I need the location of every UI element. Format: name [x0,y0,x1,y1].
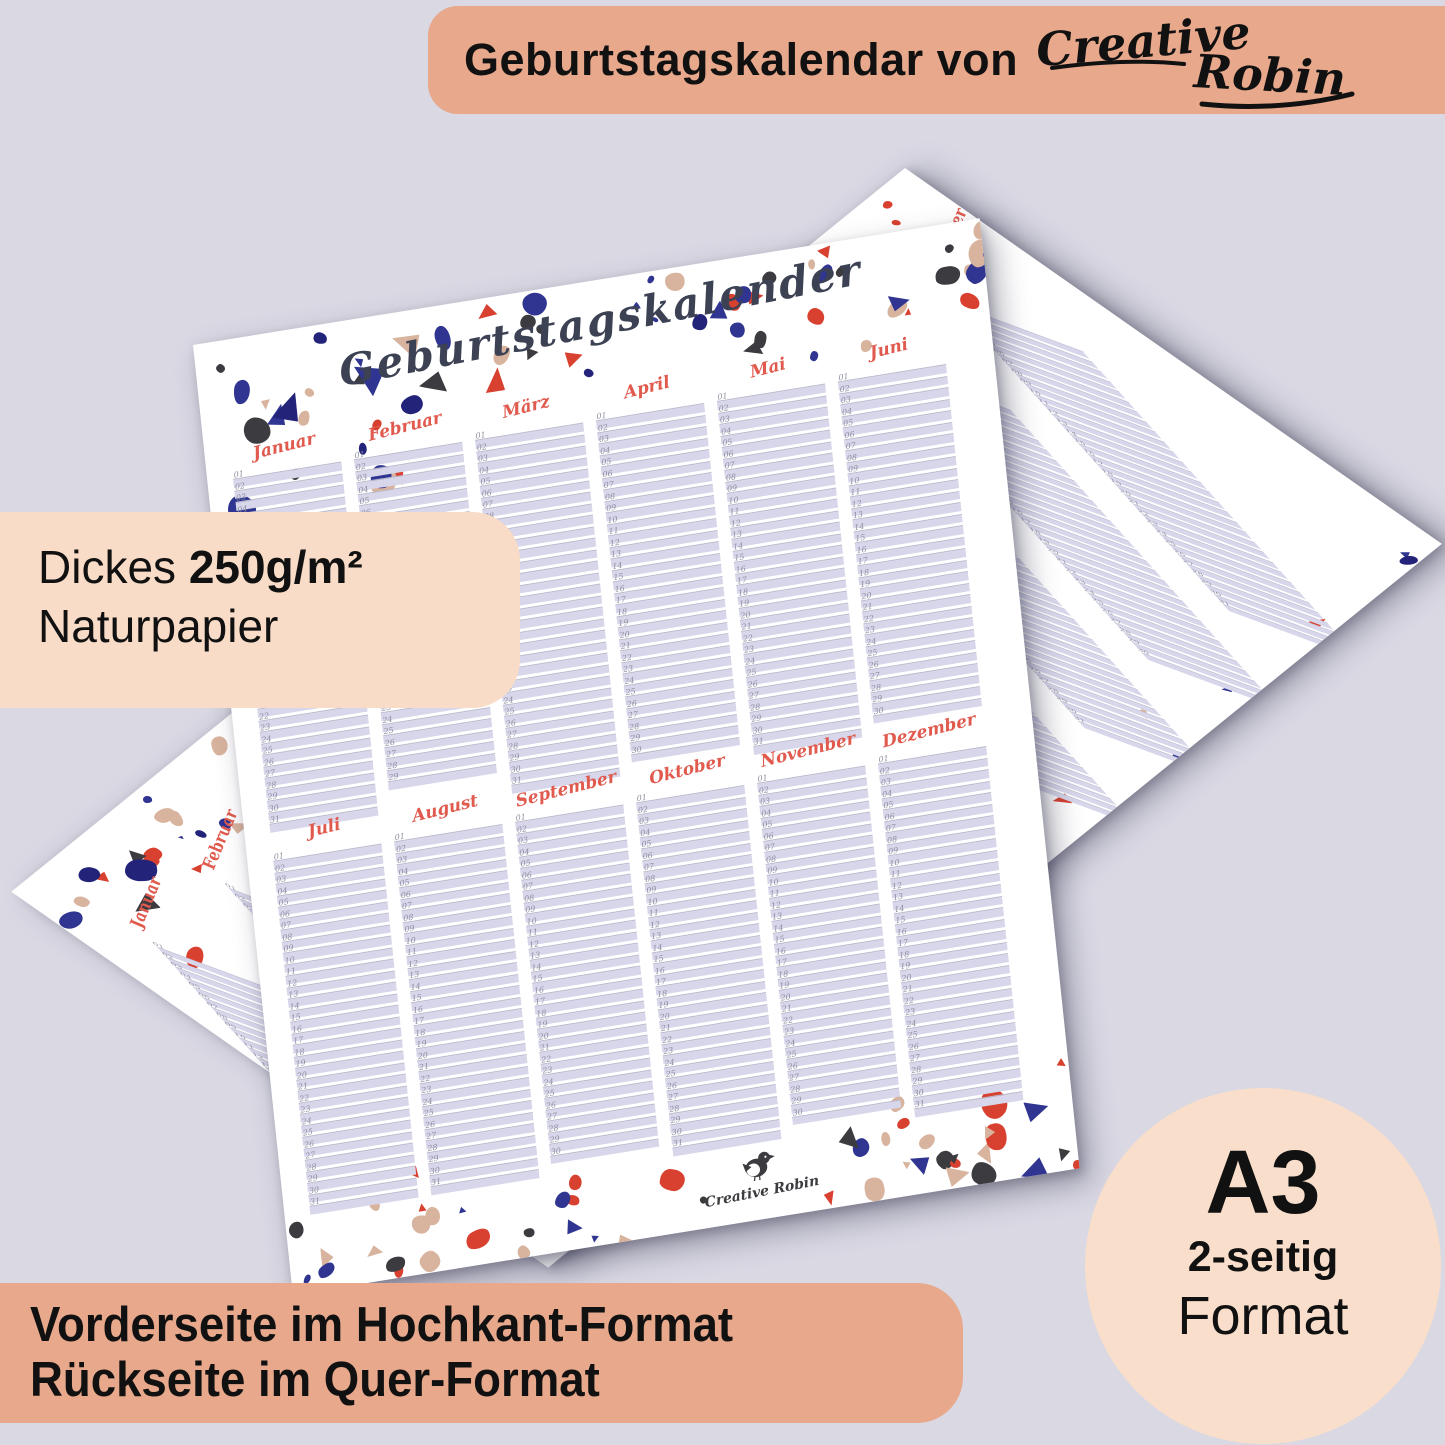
paper-spec-badge: Dickes 250g/m² Naturpapier [0,512,520,708]
day-number: 15 [613,573,624,583]
day-number: 30 [792,1108,803,1118]
day-number: 18 [415,1028,426,1038]
day-number: 03 [276,875,287,885]
day-number: 05 [601,458,612,468]
day-number: 04 [882,789,893,799]
day-number: 17 [736,576,747,586]
day-number: 29 [388,773,399,783]
day-number: 03 [760,797,771,807]
day-number: 02 [718,404,729,414]
day-number: 06 [400,890,411,900]
day-number: 08 [766,855,777,865]
terrazzo-spot [515,1243,532,1261]
day-number: 30 [268,804,279,814]
day-number: 04 [761,809,772,819]
day-number: 04 [358,485,369,495]
day-number: 03 [720,415,731,425]
terrazzo-spot [258,396,271,410]
day-number: 05 [883,801,894,811]
day-number: 15 [532,974,543,984]
day-number: 24 [785,1039,796,1049]
terrazzo-spot [916,1130,936,1151]
day-number: 25 [383,727,394,737]
day-number: 03 [840,396,851,406]
day-number: 25 [423,1109,434,1119]
day-number: 24 [301,1117,312,1127]
day-number: 28 [629,722,640,732]
day-number: 21 [298,1082,309,1092]
day-number: 18 [294,1048,305,1058]
day-number: 03 [599,435,610,445]
day-number: 21 [741,622,752,632]
day-number: 27 [870,672,881,682]
day-number: 26 [868,660,879,670]
day-number: 28 [548,1124,559,1134]
day-number: 01 [717,392,728,402]
back-month-label: Januar [125,875,167,930]
day-number: 28 [911,1065,922,1075]
day-number: 22 [904,996,915,1006]
day-number: 30 [913,1088,924,1098]
day-number: 27 [547,1112,558,1122]
day-number: 29 [872,695,883,705]
day-rows: 0102030405060708091011121314151617181920… [757,764,901,1126]
day-number: 05 [722,438,733,448]
day-number: 19 [416,1040,427,1050]
day-number: 07 [885,824,896,834]
terrazzo-spot [902,1159,912,1170]
day-number: 07 [402,902,413,912]
day-number: 04 [398,867,409,877]
day-number: 22 [863,614,874,624]
day-number: 04 [519,848,530,858]
day-number: 08 [524,894,535,904]
day-number: 09 [606,504,617,514]
day-number: 26 [787,1062,798,1072]
month-column-dezember: Dezember01020304050607080910111213141516… [874,712,1023,1118]
day-number: 31 [270,815,281,825]
day-number: 13 [288,990,299,1000]
day-number: 03 [518,836,529,846]
day-number: 25 [786,1050,797,1060]
orientation-banner: Vorderseite im Hochkant-Format Rückseite… [0,1283,963,1423]
day-number: 01 [394,833,405,843]
day-number: 01 [515,813,526,823]
robin-bird-icon [739,1146,780,1184]
day-number: 15 [653,955,664,965]
day-number: 30 [873,706,884,716]
day-number: 21 [419,1063,430,1073]
day-number: 09 [404,925,415,935]
day-number: 27 [910,1054,921,1064]
day-number: 11 [407,948,418,958]
terrazzo-spot [410,1214,432,1235]
day-number: 14 [854,522,865,532]
day-number: 05 [843,419,854,429]
terrazzo-spot [944,243,955,255]
day-number: 23 [542,1066,553,1076]
day-number: 25 [746,668,757,678]
terrazzo-spot [958,290,983,312]
day-number: 24 [664,1058,675,1068]
title-banner: Geburtstagskalendar von Creative Robin [428,6,1445,114]
day-number: 02 [396,844,407,854]
terrazzo-spot [610,1229,637,1255]
day-number: 18 [536,1009,547,1019]
day-number: 25 [302,1128,313,1138]
day-number: 07 [603,481,614,491]
day-number: 13 [530,951,541,961]
day-number: 22 [622,653,633,663]
day-number: 30 [510,765,521,775]
day-number: 30 [550,1147,561,1157]
day-number: 10 [526,917,537,927]
day-number: 19 [618,619,629,629]
terrazzo-spot [1072,1159,1080,1172]
day-number: 28 [508,742,519,752]
terrazzo-spot [1055,1057,1066,1069]
day-number: 20 [780,993,791,1003]
day-number: 25 [544,1089,555,1099]
day-number: 28 [427,1143,438,1153]
day-number: 17 [616,596,627,606]
day-number: 11 [648,909,659,919]
day-number: 26 [505,719,516,729]
day-number: 05 [641,840,652,850]
day-number: 30 [752,726,763,736]
day-number: 01 [636,794,647,804]
day-number: 10 [405,936,416,946]
terrazzo-spot [315,1260,337,1281]
day-number: 09 [283,944,294,954]
day-number: 28 [871,683,882,693]
day-number: 20 [659,1012,670,1022]
day-number: 31 [431,1178,442,1188]
day-rows: 0102030405060708091011121314151617181920… [273,841,419,1215]
day-number: 02 [597,423,608,433]
day-rows: 0102030405060708091011121314151617181920… [878,744,1024,1118]
day-number: 08 [403,913,414,923]
day-number: 23 [300,1105,311,1115]
paper-spec-line1: Dickes 250g/m² [38,538,520,597]
paper-spec-line2: Naturpapier [38,597,520,656]
day-rows: 0102030405060708091011121314151617181920… [515,802,659,1164]
day-number: 25 [665,1070,676,1080]
day-number: 21 [862,603,873,613]
day-number: 29 [791,1096,802,1106]
day-number: 14 [894,904,905,914]
day-number: 29 [549,1135,560,1145]
day-rows: 0102030405060708091011121314151617181920… [636,783,782,1157]
day-number: 27 [628,711,639,721]
day-rows: 0102030405060708091011121314151617181920… [596,401,740,763]
day-number: 16 [654,966,665,976]
format-circle-badge: A3 2-seitig Format [1085,1088,1441,1444]
day-number: 18 [617,607,628,617]
day-number: 08 [605,492,616,502]
day-number: 26 [546,1101,557,1111]
terrazzo-spot [880,1132,890,1147]
day-number: 01 [273,852,284,862]
day-number: 15 [734,553,745,563]
day-number: 12 [771,901,782,911]
day-number: 17 [857,557,868,567]
day-number: 10 [889,858,900,868]
day-number: 29 [912,1077,923,1087]
terrazzo-spot [934,265,961,288]
terrazzo-spot [561,350,583,370]
brand-second-word: Robin [1193,44,1348,106]
day-number: 05 [359,497,370,507]
terrazzo-spot [312,331,329,346]
day-number: 07 [281,921,292,931]
terrazzo-spot [211,736,229,755]
day-number: 21 [620,642,631,652]
day-number: 06 [280,910,291,920]
day-number: 04 [277,887,288,897]
day-number: 24 [422,1097,433,1107]
terrazzo-spot [215,363,227,375]
day-number: 24 [503,696,514,706]
day-number: 16 [735,565,746,575]
terrazzo-spot [967,1158,1000,1191]
day-number: 12 [892,881,903,891]
day-number: 04 [721,427,732,437]
day-number: 14 [289,1002,300,1012]
day-number: 04 [600,446,611,456]
day-number: 14 [410,982,421,992]
day-number: 09 [767,866,778,876]
day-number: 02 [638,805,649,815]
day-number: 23 [865,626,876,636]
day-rows: 0102030405060708091011121314151617181920… [717,382,863,756]
day-number: 11 [286,967,297,977]
day-number: 13 [651,932,662,942]
day-number: 04 [842,407,853,417]
day-number: 13 [772,912,783,922]
day-number: 18 [859,568,870,578]
day-number: 23 [623,665,634,675]
day-number: 20 [861,591,872,601]
day-number: 20 [538,1032,549,1042]
day-number: 06 [602,469,613,479]
day-number: 27 [265,769,276,779]
day-number: 09 [646,886,657,896]
orientation-line2: Rückseite im Quer-Format [30,1353,898,1408]
day-number: 23 [784,1027,795,1037]
day-number: 22 [420,1074,431,1084]
terrazzo-spot [303,385,316,398]
day-number: 19 [900,962,911,972]
day-number: 17 [414,1017,425,1027]
day-number: 02 [355,462,366,472]
day-rows: 0102030405060708091011121314151617181920… [394,822,540,1196]
day-number: 08 [645,874,656,884]
day-number: 02 [275,864,286,874]
day-number: 29 [509,753,520,763]
day-number: 09 [848,465,859,475]
day-number: 02 [839,384,850,394]
terrazzo-spot [1053,1143,1070,1161]
format-sides: 2-seitig [1085,1234,1441,1281]
day-number: 26 [667,1081,678,1091]
day-number: 02 [476,443,487,453]
day-number: 30 [671,1127,682,1137]
day-number: 08 [726,473,737,483]
day-number: 29 [267,792,278,802]
terrazzo-spot [804,305,827,328]
day-number: 19 [295,1059,306,1069]
terrazzo-spot [177,835,185,840]
day-number: 24 [906,1019,917,1029]
day-number: 25 [262,746,273,756]
day-number: 24 [382,715,393,725]
day-number: 15 [774,935,785,945]
day-number: 03 [397,856,408,866]
day-number: 12 [851,499,862,509]
terrazzo-spot [71,895,91,909]
creative-robin-wordmark: Creative Robin [1034,6,1364,114]
day-number: 27 [789,1073,800,1083]
day-number: 08 [887,835,898,845]
day-number: 15 [290,1013,301,1023]
day-number: 27 [668,1093,679,1103]
terrazzo-spot [861,1175,887,1205]
day-number: 29 [751,714,762,724]
day-number: 12 [408,959,419,969]
day-number: 13 [732,530,743,540]
day-number: 10 [768,878,779,888]
day-number: 01 [233,470,244,480]
day-number: 22 [541,1055,552,1065]
day-number: 26 [626,699,637,709]
day-number: 01 [878,755,889,765]
terrazzo-spot [457,1206,467,1216]
day-rows: 0102030405060708091011121314151617181920… [838,362,982,724]
day-number: 27 [749,691,760,701]
day-number: 04 [479,466,490,476]
day-number: 05 [762,820,773,830]
day-number: 08 [282,933,293,943]
day-number: 26 [304,1140,315,1150]
day-number: 28 [790,1085,801,1095]
day-number: 22 [783,1016,794,1026]
day-number: 05 [520,859,531,869]
day-number: 05 [480,477,491,487]
day-number: 06 [763,832,774,842]
day-number: 07 [724,461,735,471]
day-number: 28 [306,1163,317,1173]
day-number: 17 [293,1036,304,1046]
day-number: 25 [907,1031,918,1041]
day-number: 29 [630,734,641,744]
day-number: 31 [511,776,522,786]
day-number: 24 [624,676,635,686]
day-number: 26 [384,738,395,748]
day-number: 01 [757,774,768,784]
day-number: 11 [850,488,861,498]
day-number: 28 [750,703,761,713]
promo-image: Januar0102030405060708091011121314151617… [0,0,1445,1445]
terrazzo-spot [194,828,209,838]
day-number: 22 [299,1094,310,1104]
day-number: 16 [614,584,625,594]
day-number: 27 [426,1132,437,1142]
day-number: 17 [898,939,909,949]
day-number: 25 [625,688,636,698]
terrazzo-spot [891,219,902,226]
day-number: 12 [609,538,620,548]
terrazzo-spot [143,796,152,803]
day-number: 01 [596,412,607,422]
day-number: 01 [354,451,365,461]
day-number: 19 [739,599,750,609]
day-number: 09 [888,847,899,857]
day-number: 21 [661,1024,672,1034]
day-number: 20 [901,973,912,983]
day-number: 09 [525,905,536,915]
day-number: 23 [744,645,755,655]
day-number: 07 [644,863,655,873]
day-number: 31 [914,1100,925,1110]
day-number: 08 [847,453,858,463]
day-number: 07 [845,442,856,452]
day-number: 22 [259,712,270,722]
day-number: 11 [890,870,901,880]
terrazzo-spot [730,321,744,337]
day-number: 16 [534,986,545,996]
back-month-label: Februar [197,808,242,871]
terrazzo-spot [882,200,894,210]
day-number: 13 [853,511,864,521]
day-number: 19 [537,1020,548,1030]
day-number: 05 [399,879,410,889]
day-number: 10 [647,897,658,907]
day-number: 06 [723,450,734,460]
day-number: 06 [642,851,653,861]
day-number: 18 [657,989,668,999]
day-number: 18 [899,950,910,960]
day-number: 15 [895,916,906,926]
day-number: 27 [507,730,518,740]
day-number: 02 [517,825,528,835]
day-number: 24 [543,1078,554,1088]
day-number: 06 [521,871,532,881]
day-number: 13 [893,893,904,903]
day-number: 17 [777,958,788,968]
day-number: 16 [413,1005,424,1015]
day-number: 05 [278,898,289,908]
day-number: 16 [775,947,786,957]
day-number: 20 [417,1051,428,1061]
day-number: 06 [844,430,855,440]
day-number: 12 [650,920,661,930]
day-number: 20 [296,1071,307,1081]
day-number: 01 [475,431,486,441]
day-number: 14 [773,924,784,934]
day-number: 19 [779,981,790,991]
day-number: 22 [743,634,754,644]
day-number: 11 [769,889,780,899]
day-number: 31 [673,1139,684,1149]
day-number: 14 [652,943,663,953]
day-number: 02 [235,482,246,492]
day-number: 28 [387,761,398,771]
day-number: 19 [658,1001,669,1011]
day-number: 07 [765,843,776,853]
terrazzo-spot [1399,556,1418,566]
terrazzo-spot [234,380,251,404]
